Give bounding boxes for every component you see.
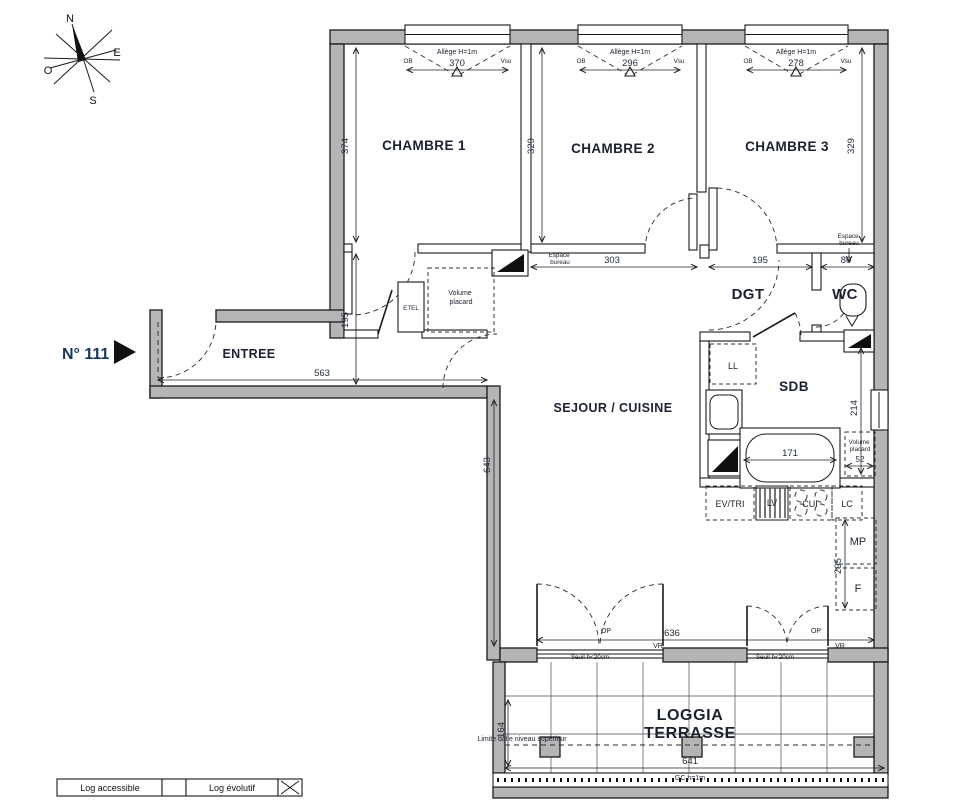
dim-loggia-w: 641: [682, 756, 698, 767]
dim-dgt-w: 195: [752, 255, 768, 266]
loggia-label-l2: TERRASSE: [644, 725, 736, 742]
dim-sdb-h: 214: [849, 400, 860, 416]
dim-ch1-h: 374: [340, 138, 351, 154]
lv-label: LV: [767, 498, 777, 508]
allege-label-1: Allège H=1m: [437, 49, 477, 56]
window-ob-1: OB: [403, 58, 412, 65]
dim-win2: 296: [622, 58, 638, 69]
room-chambre2: CHAMBRE 2: [571, 141, 655, 156]
espace-bureau-left-l1: Espace: [549, 252, 571, 259]
volume-placard-l1: Volume: [448, 290, 471, 297]
room-entree: ENTREE: [222, 347, 275, 361]
window-vsu-2: Vsu: [674, 58, 685, 65]
dim-sejour-h: 643: [482, 457, 493, 473]
legend-checkbox-evolutif-checked: [278, 779, 302, 796]
window-ob-2: OB: [576, 58, 585, 65]
legend-evolutif-label: Log évolutif: [209, 783, 256, 793]
etel-label: ETEL: [403, 305, 419, 312]
op-label-1: OP: [601, 628, 611, 635]
dim-bath-w: 171: [782, 448, 798, 459]
espace-bureau-right-l2: bureau: [839, 240, 859, 247]
dim-ch2-h: 329: [526, 138, 537, 154]
f-label: F: [855, 583, 862, 595]
op-label-2: OP: [811, 628, 821, 635]
allege-label-2: Allège H=1m: [610, 49, 650, 56]
dim-entree-h: 195: [340, 312, 351, 328]
washbasin: [706, 390, 742, 434]
compass-o: O: [44, 65, 53, 77]
compass-e: E: [113, 47, 120, 59]
svg-text:Espace bureau: Espace bureau: [838, 233, 861, 247]
loggia-label-l1: LOGGIA: [657, 707, 724, 724]
floorplan-page: N E S O N° 111: [0, 0, 980, 800]
legend-accessible-label: Log accessible: [80, 783, 140, 793]
dim-ch3-h: 329: [846, 138, 857, 154]
floorplan-canvas: N E S O N° 111: [0, 0, 980, 800]
seuil-label-1: Seuil h<20cm: [571, 654, 609, 661]
room-chambre3: CHAMBRE 3: [745, 139, 829, 154]
room-sejour: SEJOUR / CUISINE: [554, 401, 673, 415]
window-ob-3: OB: [743, 58, 752, 65]
volume-placard-sdb-l1: Volume: [849, 439, 871, 446]
ll-label: LL: [728, 361, 738, 371]
gc-label: GC h=1m: [675, 775, 705, 782]
svg-text:Volume placard: Volume placard: [849, 439, 872, 453]
room-chambre1: CHAMBRE 1: [382, 138, 466, 153]
vr-label-2: VR: [835, 643, 845, 650]
room-sdb: SDB: [779, 379, 809, 394]
seuil-label-2: Seuil h<20cm: [756, 654, 794, 661]
compass-n: N: [66, 13, 74, 25]
room-dgt: DGT: [732, 286, 765, 303]
dim-wc-w: 80: [841, 255, 852, 266]
dim-entree-w: 563: [314, 368, 330, 379]
ev-tri-label: EV/TRI: [715, 499, 744, 509]
legend: Log accessible Log évolutif: [57, 779, 302, 796]
loggia-pillar: [854, 737, 874, 757]
dim-placard-w: 52: [856, 455, 865, 464]
window-vsu-1: Vsu: [501, 58, 512, 65]
gaine-box-1: [492, 250, 528, 276]
limite-dalle-label: Limite dalle niveau supérieur: [477, 736, 567, 743]
mp-label: MP: [850, 536, 867, 548]
compass-s: S: [89, 95, 96, 107]
svg-text:Espace bureau: Espace bureau: [549, 252, 572, 266]
dim-corridor: 303: [604, 255, 620, 266]
vr-label-1: VR: [653, 643, 663, 650]
allege-label-3: Allège H=1m: [776, 49, 816, 56]
etel-cabinet: ETEL: [398, 282, 424, 332]
legend-checkbox-accessible: [162, 779, 186, 796]
window-vsu-3: Vsu: [841, 58, 852, 65]
dim-sejour-w: 636: [664, 628, 680, 639]
cui-label: CUI: [802, 499, 818, 509]
espace-bureau-right-l1: Espace: [838, 233, 860, 240]
dim-loggia-h: 164: [496, 722, 507, 738]
espace-bureau-left-l2: bureau: [550, 259, 570, 266]
room-wc: WC: [832, 286, 858, 303]
volume-placard-sdb-l2: placard: [850, 446, 871, 453]
dim-win3: 278: [788, 58, 804, 69]
gaine-box-2: [844, 330, 874, 352]
unit-number: N° 111: [62, 346, 109, 363]
dim-win1: 370: [449, 58, 465, 69]
volume-placard-l2: placard: [450, 299, 473, 306]
dim-kitchen-col: 295: [833, 558, 844, 574]
gaine-box-3: [708, 440, 742, 476]
lc-label: LC: [841, 499, 853, 509]
